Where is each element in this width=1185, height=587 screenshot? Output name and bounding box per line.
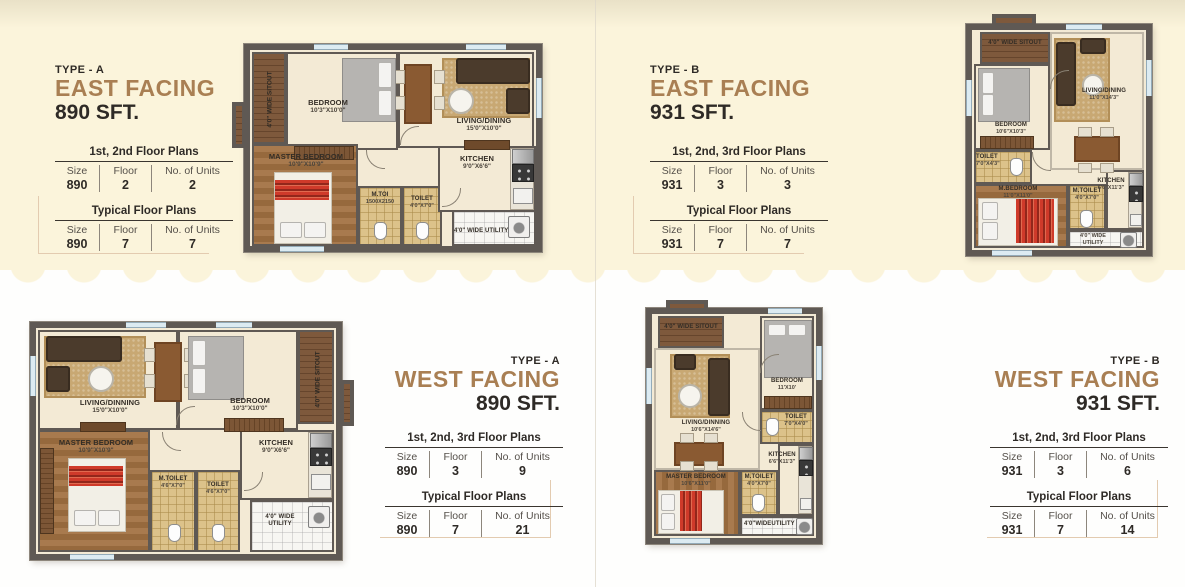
red-blanket — [275, 180, 329, 200]
chair — [704, 433, 718, 443]
red-blanket — [680, 491, 702, 531]
panel-east-b-heading: TYPE - B EAST FACING 931 SFT. — [650, 64, 810, 124]
floor-plan-table: 1st, 2nd, 3rd Floor Plans Size931 Floor3… — [650, 146, 828, 192]
fridge — [512, 149, 534, 164]
round-table — [448, 88, 474, 114]
sofa — [708, 358, 730, 416]
floor-plan-east-b: 4'0" WIDE SITOUT — [966, 24, 1152, 256]
dining-table — [154, 342, 182, 402]
floor-plan-table: Typical Floor Plans Size931 Floor7 No. o… — [990, 491, 1168, 537]
floor-plan-east-a: 4'0" WIDE SITOUT — [244, 44, 542, 252]
toilet-seat — [168, 524, 181, 542]
panel-east-a-heading: TYPE - A EAST FACING 890 SFT. — [55, 64, 215, 124]
table-title: 1st, 2nd, 3rd Floor Plans — [385, 432, 563, 448]
table-title: Typical Floor Plans — [650, 205, 828, 221]
fridge — [1129, 173, 1143, 186]
room-label-mtoilet: M.TOI 1500X2150 — [359, 192, 401, 206]
chair — [1078, 127, 1092, 137]
window — [768, 308, 802, 314]
floor-plan-table: 1st, 2nd, 3rd Floor Plans Size931 Floor3… — [990, 432, 1168, 478]
table-row: Size931 Floor7 No. of Units14 — [990, 510, 1168, 537]
pillow — [192, 340, 206, 366]
chair — [704, 461, 718, 471]
panel-west-a-tables: 1st, 2nd, 3rd Floor Plans Size890 Floor3… — [385, 432, 563, 550]
red-blanket — [1016, 199, 1054, 243]
room-label-master: M.BEDROOM 11'0"X11'0" — [980, 186, 1056, 200]
facing-title: EAST FACING — [650, 76, 810, 101]
sitout-room: 4'0" WIDE SITOUT — [298, 330, 334, 424]
chair — [434, 70, 445, 84]
toilet-seat — [212, 524, 225, 542]
room-label-utility: 4'0"WIDEUTILITY — [744, 521, 794, 528]
table-row: Size931 Floor7 No. of Units7 — [650, 224, 828, 251]
room-label-master: MASTER BEDROOM 10'9"X10'9" — [258, 152, 354, 169]
window — [314, 44, 348, 50]
window — [466, 44, 506, 50]
room-label-bedroom: BEDROOM 10'6"X10'3" — [976, 122, 1046, 136]
pillow — [982, 72, 994, 94]
window — [646, 368, 652, 404]
room-label-master: MASTER BEDROOM 10'6"X11'0" — [658, 474, 734, 488]
floor-plan-west-a: 4'0" WIDE SITOUT — [30, 322, 342, 560]
floor-plan-west-b: 4'0" WIDE SITOUT — [646, 308, 822, 544]
floor-plan-table: Typical Floor Plans Size890 Floor7 No. o… — [55, 205, 233, 251]
window — [536, 78, 542, 118]
pillow — [982, 94, 994, 116]
toilet-seat — [1080, 210, 1093, 228]
facing-title: WEST FACING — [385, 367, 560, 392]
washing-machine — [508, 216, 530, 238]
window — [966, 80, 972, 116]
room-label-kitchen: KITCHEN 9'0"X6'6" — [246, 438, 306, 455]
wardrobe — [764, 396, 812, 409]
pillow — [74, 510, 96, 526]
toilet-seat — [1010, 158, 1023, 176]
pillow — [304, 222, 326, 238]
table-title: Typical Floor Plans — [385, 491, 563, 507]
pillow — [768, 324, 786, 336]
room-label-bedroom: BEDROOM 10'3"X10'0" — [290, 98, 366, 115]
toilet-seat — [374, 222, 387, 240]
table-title: 1st, 2nd, 3rd Floor Plans — [650, 146, 828, 162]
center-divider-line — [595, 0, 596, 587]
facing-title: WEST FACING — [990, 367, 1160, 392]
round-table — [678, 384, 702, 408]
sitout-room: 4'0" WIDE SITOUT — [658, 316, 724, 348]
table-title: 1st, 2nd Floor Plans — [55, 146, 233, 162]
chair — [434, 96, 445, 110]
window — [670, 538, 710, 544]
wardrobe — [224, 418, 284, 432]
balcony-step — [340, 380, 354, 426]
sink — [513, 188, 533, 204]
washing-machine — [796, 518, 813, 535]
panel-west-b-heading: TYPE - B WEST FACING 931 SFT. — [990, 355, 1160, 415]
stove — [512, 164, 534, 182]
pillow — [661, 494, 675, 511]
chair — [1100, 163, 1114, 173]
room-label-living: LIVING/DINING 15'0"X10'0" — [434, 116, 534, 133]
tv-unit — [464, 140, 510, 150]
room-label-living: LIVING/DINNING 10'6"X14'6" — [660, 420, 752, 434]
toilet-seat — [416, 222, 429, 240]
stove — [799, 460, 813, 476]
sofa-seat — [46, 366, 70, 392]
room-label-utility: 4'0" WIDE UTILITY — [256, 514, 304, 528]
room-label-living: LIVING/DINING 11'0"X14'3" — [1066, 88, 1142, 102]
chair — [144, 374, 155, 388]
pillow — [788, 324, 806, 336]
sofa — [46, 336, 122, 362]
room-label-toilet: TOILET 4'0"X7'0" — [403, 196, 441, 210]
room-label-mtoilet: M.TOILET 4'6"X7'0" — [152, 476, 194, 490]
dining-table — [404, 64, 432, 124]
scalloped-edge — [0, 270, 1185, 288]
floor-plan-table: Typical Floor Plans Size890 Floor7 No. o… — [385, 491, 563, 537]
table-row: Size890 Floor7 No. of Units7 — [55, 224, 233, 251]
room-label-utility: 4'0" WIDE UTILITY — [1070, 233, 1116, 246]
room-label-bedroom: BEDROOM 11'X10' — [762, 378, 812, 392]
window — [1066, 24, 1102, 30]
room-label-kitchen: KITCHEN 9'0"X6'6" — [446, 154, 508, 171]
room-label-bedroom: BEDROOM 10'3"X10'0" — [208, 396, 292, 413]
pillow — [661, 513, 675, 530]
door-arc — [162, 432, 181, 451]
sofa-seat — [1080, 38, 1106, 54]
chair — [680, 461, 694, 471]
window — [216, 322, 252, 328]
room-label-kitchen: KITCHEN 6'6"X11'3" — [766, 452, 798, 466]
floor-plan-table: 1st, 2nd Floor Plans Size890 Floor2 No. … — [55, 146, 233, 192]
table-row: Size890 Floor3 No. of Units9 — [385, 451, 563, 478]
room-label-utility: 4'0" WIDE UTILITY — [454, 228, 508, 235]
window — [126, 322, 166, 328]
window — [70, 554, 114, 560]
size-title: 931 SFT. — [650, 101, 810, 124]
sitout-room: 4'0" WIDE SITOUT — [980, 32, 1050, 64]
sofa-seat — [674, 354, 696, 370]
sitout-room: 4'0" WIDE SITOUT — [252, 52, 286, 144]
size-title: 890 SFT. — [385, 392, 560, 415]
sink — [311, 474, 331, 490]
panel-west-a-heading: TYPE - A WEST FACING 890 SFT. — [385, 355, 560, 415]
sink — [800, 498, 812, 510]
washing-machine — [1120, 232, 1137, 248]
fridge — [310, 433, 332, 448]
pillow — [378, 90, 392, 116]
dining-table — [1074, 136, 1120, 162]
fridge — [799, 447, 813, 460]
balcony-step — [232, 102, 246, 148]
table-row: Size931 Floor3 No. of Units3 — [650, 165, 828, 192]
sitout-label: 4'0" WIDE SITOUT — [315, 340, 322, 420]
table-row: Size890 Floor2 No. of Units2 — [55, 165, 233, 192]
sink — [1130, 214, 1142, 226]
panel-west-b-tables: 1st, 2nd, 3rd Floor Plans Size931 Floor3… — [990, 432, 1168, 550]
window — [992, 250, 1032, 256]
door-arc — [366, 150, 385, 169]
size-title: 890 SFT. — [55, 101, 215, 124]
toilet-seat — [752, 494, 765, 512]
chair — [144, 348, 155, 362]
brochure-page: TYPE - A EAST FACING 890 SFT. 1st, 2nd F… — [0, 0, 1185, 587]
facing-title: EAST FACING — [55, 76, 215, 101]
window — [30, 356, 36, 396]
balcony-step — [666, 300, 708, 312]
pillow — [982, 222, 998, 240]
washing-machine — [308, 506, 330, 528]
wardrobe — [40, 448, 54, 534]
room-label-kitchen: KITCHEN 6'6"X11'3" — [1094, 178, 1128, 192]
table-row: Size931 Floor3 No. of Units6 — [990, 451, 1168, 478]
stove — [1129, 186, 1143, 202]
room-label-toilet: TOILET 7'0"X4'0" — [780, 414, 812, 428]
size-title: 931 SFT. — [990, 392, 1160, 415]
pillow — [98, 510, 120, 526]
window — [1146, 60, 1152, 96]
room-label-toilet: TOILET 7'0"X4'3" — [976, 154, 1010, 168]
window — [816, 346, 822, 380]
red-blanket — [69, 466, 123, 486]
balcony-step — [992, 14, 1036, 27]
room-label-mtoilet: M.TOILET 4'0"X7'0" — [741, 474, 777, 488]
pillow — [280, 222, 302, 238]
chair — [680, 433, 694, 443]
toilet-seat — [766, 418, 779, 436]
wardrobe — [980, 136, 1034, 149]
window — [280, 246, 324, 252]
pillow — [192, 368, 206, 394]
floor-plan-table: 1st, 2nd, 3rd Floor Plans Size890 Floor3… — [385, 432, 563, 478]
pillow — [982, 202, 998, 220]
table-title: Typical Floor Plans — [990, 491, 1168, 507]
sofa — [456, 58, 530, 84]
chair — [1078, 163, 1092, 173]
panel-east-b-tables: 1st, 2nd, 3rd Floor Plans Size931 Floor3… — [650, 146, 828, 264]
table-title: Typical Floor Plans — [55, 205, 233, 221]
floor-plan-table: Typical Floor Plans Size931 Floor7 No. o… — [650, 205, 828, 251]
table-title: 1st, 2nd, 3rd Floor Plans — [990, 432, 1168, 448]
room-label-master: MASTER BEDROOM 10'9"X10'9" — [46, 438, 146, 455]
sitout-label: 4'0" WIDE SITOUT — [986, 40, 1044, 47]
panel-east-a-tables: 1st, 2nd Floor Plans Size890 Floor2 No. … — [55, 146, 233, 264]
room-label-living: LIVING/DINNING 15'0"X10'0" — [54, 398, 166, 415]
door-arc — [1032, 152, 1051, 171]
sofa-seat — [506, 88, 530, 114]
round-table — [88, 366, 114, 392]
sitout-label: 4'0" WIDE SITOUT — [267, 60, 274, 140]
sitout-label: 4'0" WIDE SITOUT — [663, 324, 719, 331]
pillow — [378, 62, 392, 88]
stove — [310, 448, 332, 466]
table-row: Size890 Floor7 No. of Units21 — [385, 510, 563, 537]
chair — [1100, 127, 1114, 137]
tv-unit — [80, 422, 126, 432]
room-label-toilet: TOILET 4'6"X7'0" — [199, 482, 237, 496]
